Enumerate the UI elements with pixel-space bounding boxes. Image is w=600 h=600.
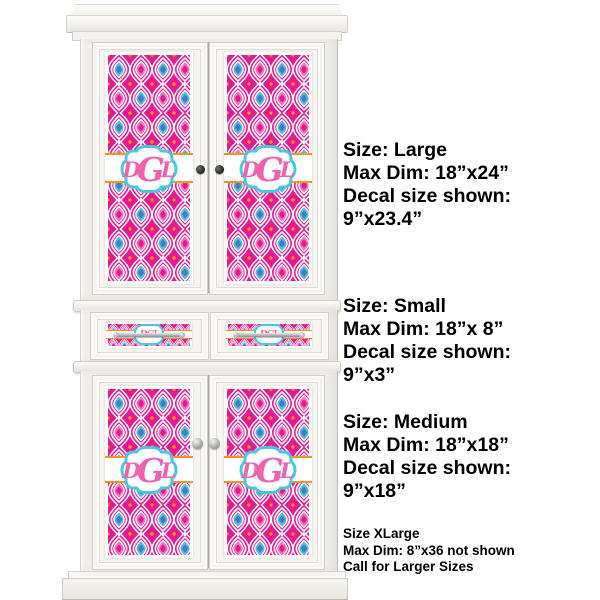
size-max-dim: Max Dim: 18”x24” [343, 162, 593, 185]
size-block-xlarge: Size XLarge Max Dim: 8”x36 not shown Cal… [343, 526, 593, 576]
decal-small-right: DGL [226, 322, 312, 348]
decal-large-right: DGL [224, 52, 312, 284]
monogram-badge: DGL [237, 144, 299, 194]
bail-post-icon [113, 332, 119, 338]
decal-small-left: DGL [106, 322, 192, 348]
size-title: Size XLarge [343, 526, 593, 543]
size-note-line: Call for Larger Sizes [343, 559, 593, 576]
monogram-letters: DGL [122, 454, 175, 487]
size-block-medium: Size: Medium Max Dim: 18”x18” Decal size… [343, 411, 593, 503]
upper-left-door-knob [196, 165, 205, 174]
monogram-badge: DGL [118, 445, 180, 495]
size-title: Size: Small [343, 295, 593, 318]
drawer-bail-handle [235, 333, 303, 337]
size-decal-line: Decal size shown: [343, 457, 593, 480]
bail-post-icon [233, 332, 239, 338]
size-decal-line: Decal size shown: [343, 185, 593, 208]
upper-right-door: DGL [209, 42, 325, 295]
size-decal-size: 9”x23.4” [343, 208, 593, 231]
decal-large-left: DGL [105, 52, 193, 284]
size-max-dim: Max Dim: 18”x 8” [343, 318, 593, 341]
monogram-badge: DGL [237, 445, 299, 495]
monogram-badge: DGL [118, 144, 180, 194]
drawer-bail-handle [115, 333, 183, 337]
bail-post-icon [299, 332, 305, 338]
cabinet-base-plinth [62, 578, 348, 600]
upper-right-door-knob [215, 165, 224, 174]
size-decal-size: 9”x18” [343, 480, 593, 503]
size-max-dim: Max Dim: 8”x36 not shown [343, 543, 593, 560]
upper-left-door: DGL [92, 42, 208, 295]
lower-left-door-knob [192, 438, 203, 449]
decal-medium-left: DGL [105, 386, 193, 558]
decal-medium-right: DGL [224, 386, 312, 558]
right-drawer: DGL [210, 312, 329, 360]
size-max-dim: Max Dim: 18”x18” [343, 434, 593, 457]
product-preview-image: DGL DGL DGL [0, 0, 600, 600]
size-block-small: Size: Small Max Dim: 18”x 8” Decal size … [343, 295, 593, 387]
lower-right-door-knob [209, 438, 220, 449]
left-drawer: DGL [90, 312, 209, 360]
monogram-letters: DGL [122, 153, 175, 186]
size-title: Size: Medium [343, 411, 593, 434]
size-decal-line: Decal size shown: [343, 341, 593, 364]
monogram-letters: DGL [241, 153, 294, 186]
monogram-letters: DGL [241, 454, 294, 487]
size-decal-size: 9”x3” [343, 364, 593, 387]
size-title: Size: Large [343, 139, 593, 162]
size-block-large: Size: Large Max Dim: 18”x24” Decal size … [343, 139, 593, 231]
lower-right-door: DGL [209, 375, 325, 570]
lower-left-door: DGL [92, 375, 208, 570]
bail-post-icon [179, 332, 185, 338]
